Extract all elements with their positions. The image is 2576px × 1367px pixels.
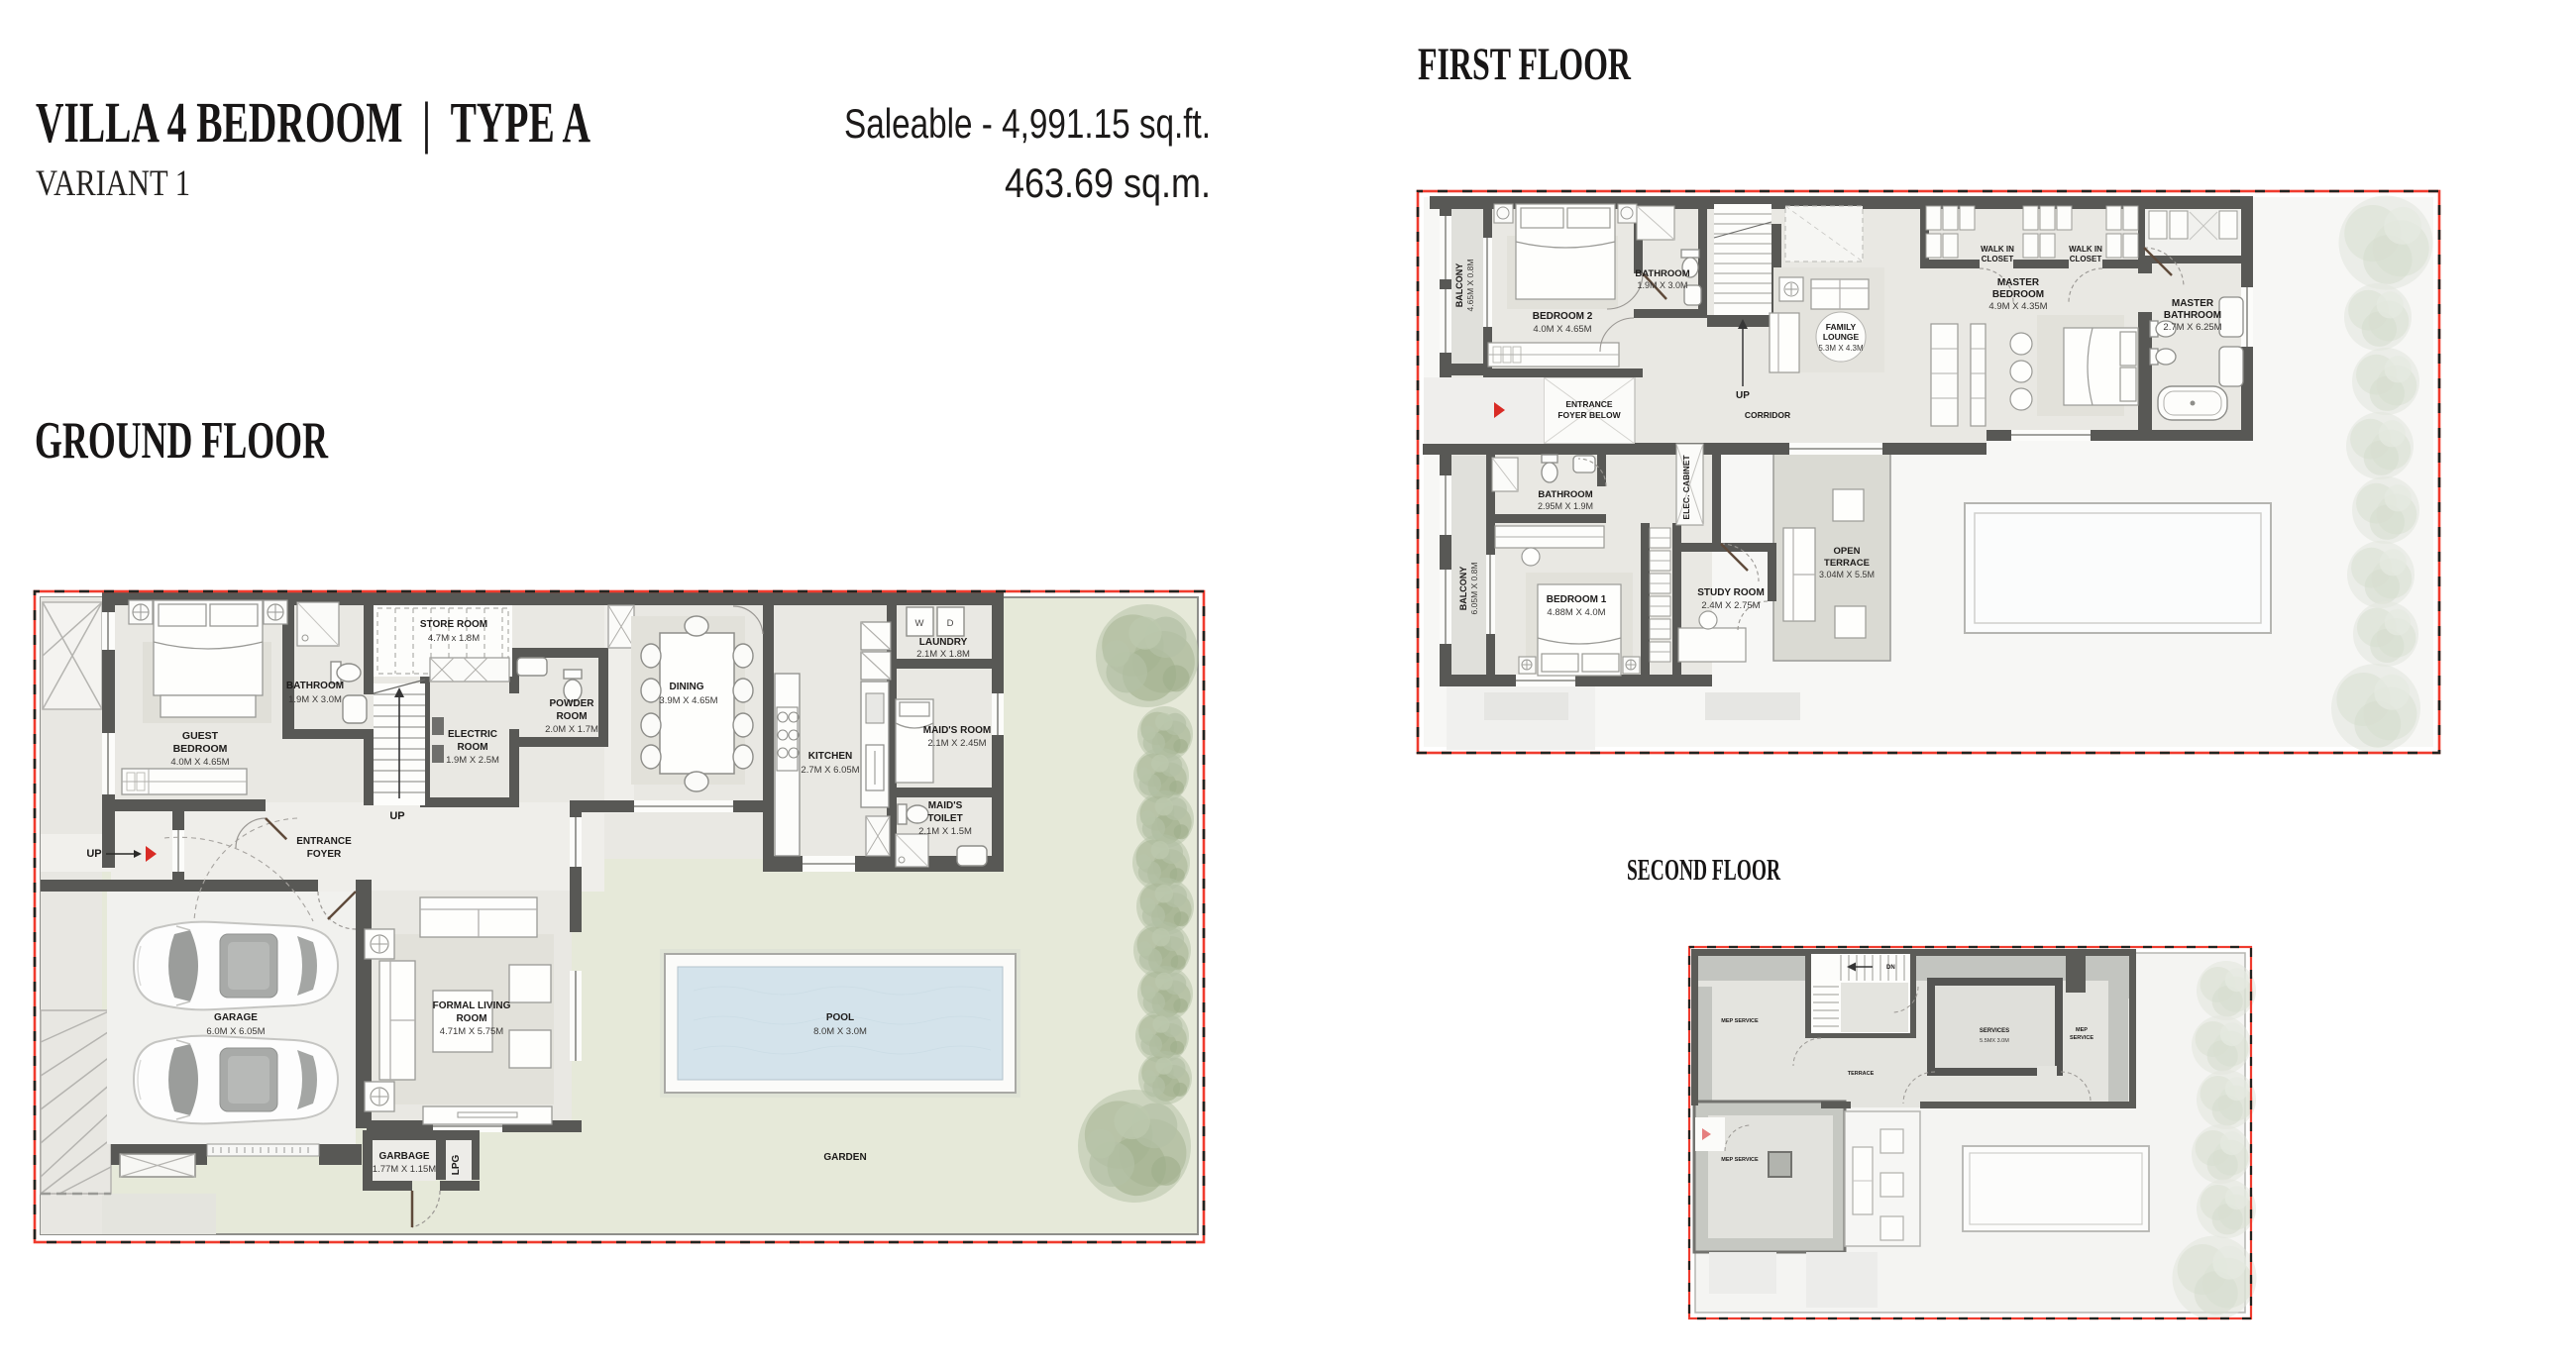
svg-text:POWDER: POWDER: [550, 698, 595, 709]
svg-text:GUEST: GUEST: [182, 730, 219, 742]
svg-text:BALCONY: BALCONY: [1458, 567, 1468, 611]
svg-text:FOYER BELOW: FOYER BELOW: [1557, 410, 1621, 420]
svg-text:1.77M X 1.15M: 1.77M X 1.15M: [373, 1164, 437, 1175]
svg-text:BATHROOM: BATHROOM: [1538, 489, 1592, 500]
svg-text:MEP SERVICE: MEP SERVICE: [1721, 1157, 1759, 1163]
svg-text:UP: UP: [1736, 390, 1750, 401]
svg-text:4.0M X 4.65M: 4.0M X 4.65M: [1533, 324, 1591, 335]
svg-text:BEDROOM 2: BEDROOM 2: [1533, 311, 1593, 322]
svg-text:1.9M X 3.0M: 1.9M X 3.0M: [288, 694, 342, 705]
svg-text:UP: UP: [389, 810, 404, 822]
svg-text:8.0M X 3.0M: 8.0M X 3.0M: [813, 1026, 867, 1037]
svg-text:2.7M X 6.25M: 2.7M X 6.25M: [2163, 322, 2221, 333]
svg-text:463.69 sq.m.: 463.69 sq.m.: [1005, 159, 1211, 206]
svg-text:VILLA 4 BEDROOM | TYPE A: VILLA 4 BEDROOM | TYPE A: [36, 90, 590, 155]
svg-text:BEDROOM: BEDROOM: [173, 743, 228, 755]
svg-text:UP: UP: [86, 848, 101, 860]
svg-text:FAMILY: FAMILY: [1826, 322, 1857, 332]
svg-text:BATHROOM: BATHROOM: [286, 681, 344, 691]
svg-text:KITCHEN: KITCHEN: [808, 751, 852, 762]
svg-text:BATHROOM: BATHROOM: [2164, 310, 2221, 321]
svg-text:D: D: [947, 618, 954, 629]
svg-text:ELEC. CABINET: ELEC. CABINET: [1681, 455, 1691, 520]
svg-text:6.05M X 0.8M: 6.05M X 0.8M: [1469, 563, 1479, 615]
svg-text:MASTER: MASTER: [2172, 298, 2214, 309]
svg-text:ROOM: ROOM: [556, 711, 587, 722]
svg-text:GROUND FLOOR: GROUND FLOOR: [35, 412, 328, 470]
svg-text:SERVICES: SERVICES: [1980, 1028, 2009, 1034]
svg-text:LAUNDRY: LAUNDRY: [919, 637, 968, 648]
svg-text:MASTER: MASTER: [1997, 277, 2040, 288]
svg-text:SECOND FLOOR: SECOND FLOOR: [1627, 852, 1780, 887]
svg-text:4.0M X 4.65M: 4.0M X 4.65M: [170, 757, 229, 768]
svg-text:5.3M X 4.3M: 5.3M X 4.3M: [1818, 344, 1864, 353]
svg-text:MEP SERVICE: MEP SERVICE: [1721, 1018, 1759, 1024]
svg-text:STORE ROOM: STORE ROOM: [420, 619, 487, 630]
svg-text:STUDY ROOM: STUDY ROOM: [1697, 587, 1765, 598]
svg-text:LPG: LPG: [451, 1155, 462, 1176]
svg-text:Saleable - 4,991.15 sq.ft.: Saleable - 4,991.15 sq.ft.: [844, 100, 1211, 147]
svg-text:FORMAL LIVING: FORMAL LIVING: [433, 1000, 511, 1011]
svg-text:3.04M X 5.5M: 3.04M X 5.5M: [1819, 570, 1875, 579]
svg-text:SERVICE: SERVICE: [2070, 1035, 2093, 1041]
svg-text:GARBAGE: GARBAGE: [378, 1151, 429, 1162]
svg-text:WALK IN: WALK IN: [1981, 245, 2014, 254]
svg-text:1.9M X 3.0M: 1.9M X 3.0M: [1637, 280, 1687, 290]
svg-text:2.95M X 1.9M: 2.95M X 1.9M: [1538, 501, 1593, 511]
svg-text:CLOSET: CLOSET: [1982, 255, 2014, 263]
svg-text:CORRIDOR: CORRIDOR: [1745, 410, 1790, 420]
svg-text:BEDROOM: BEDROOM: [1992, 289, 2044, 300]
svg-text:2.1M X 1.8M: 2.1M X 1.8M: [916, 649, 970, 660]
svg-text:4.88M X 4.0M: 4.88M X 4.0M: [1547, 607, 1605, 618]
svg-text:6.0M X 6.05M: 6.0M X 6.05M: [206, 1026, 265, 1037]
svg-text:4.7M x 1.8M: 4.7M x 1.8M: [428, 633, 480, 644]
svg-text:4.9M X 4.35M: 4.9M X 4.35M: [1988, 301, 2047, 312]
svg-text:GARDEN: GARDEN: [823, 1152, 866, 1163]
svg-text:POOL: POOL: [826, 1012, 854, 1023]
svg-text:2.1M X 2.45M: 2.1M X 2.45M: [927, 738, 986, 749]
svg-text:ELECTRIC: ELECTRIC: [448, 729, 497, 740]
svg-text:3.9M X 4.65M: 3.9M X 4.65M: [659, 695, 717, 706]
svg-text:5.5MX 3.0M: 5.5MX 3.0M: [1980, 1038, 2009, 1044]
svg-text:2.1M X 1.5M: 2.1M X 1.5M: [918, 826, 972, 837]
svg-text:ENTRANCE: ENTRANCE: [1565, 399, 1613, 409]
svg-text:DINING: DINING: [670, 682, 704, 692]
svg-text:W: W: [915, 618, 924, 629]
svg-text:ENTRANCE: ENTRANCE: [296, 836, 352, 847]
svg-text:4.65M X 0.8M: 4.65M X 0.8M: [1465, 260, 1475, 312]
svg-text:CLOSET: CLOSET: [2070, 255, 2102, 263]
svg-text:FOYER: FOYER: [307, 849, 342, 860]
svg-text:TERRACE: TERRACE: [1848, 1071, 1875, 1077]
svg-text:MAID'S: MAID'S: [928, 800, 963, 811]
svg-text:ROOM: ROOM: [457, 742, 487, 753]
svg-text:TOILET: TOILET: [927, 813, 962, 824]
svg-text:DN: DN: [1886, 965, 1895, 971]
svg-text:WALK IN: WALK IN: [2069, 245, 2102, 254]
svg-text:BALCONY: BALCONY: [1454, 263, 1464, 308]
svg-text:OPEN: OPEN: [1834, 546, 1861, 557]
svg-text:2.4M X 2.75M: 2.4M X 2.75M: [1701, 600, 1760, 611]
svg-text:2.0M X 1.7M: 2.0M X 1.7M: [545, 724, 598, 735]
svg-text:1.9M X 2.5M: 1.9M X 2.5M: [446, 755, 499, 766]
svg-text:FIRST FLOOR: FIRST FLOOR: [1418, 39, 1632, 90]
svg-text:ROOM: ROOM: [456, 1013, 486, 1024]
svg-text:BEDROOM 1: BEDROOM 1: [1547, 594, 1607, 605]
svg-text:VARIANT 1: VARIANT 1: [36, 163, 190, 204]
svg-text:TERRACE: TERRACE: [1824, 558, 1870, 569]
svg-text:GARAGE: GARAGE: [214, 1012, 258, 1023]
svg-text:MEP: MEP: [2076, 1027, 2088, 1033]
svg-text:LOUNGE: LOUNGE: [1823, 332, 1860, 342]
svg-text:BATHROOM: BATHROOM: [1635, 268, 1689, 279]
svg-text:4.71M X 5.75M: 4.71M X 5.75M: [440, 1026, 504, 1037]
svg-text:2.7M X 6.05M: 2.7M X 6.05M: [801, 765, 859, 776]
svg-text:MAID'S ROOM: MAID'S ROOM: [923, 725, 992, 736]
